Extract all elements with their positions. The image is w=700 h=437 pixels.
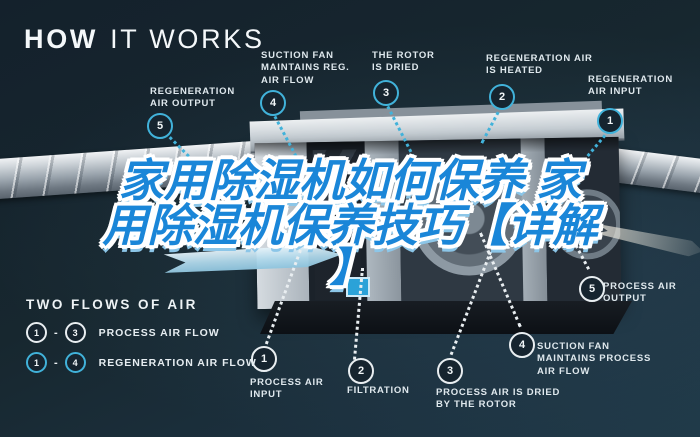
process-badge-2: 2 (348, 358, 374, 384)
regen-badge-5: 5 (147, 113, 173, 139)
regen-label-3: THE ROTOR IS DRIED (372, 50, 447, 75)
machine-base-plinth (260, 301, 632, 334)
legend-row-process: 1 - 3 PROCESS AIR FLOW (26, 322, 220, 343)
process-label-2: FILTRATION (347, 385, 427, 397)
overlay-line-1: 家用除湿机如何保养 家 (0, 158, 700, 203)
process-badge-3: 3 (437, 358, 463, 384)
process-label-3: PROCESS AIR IS DRIED BY THE ROTOR (436, 387, 561, 412)
page-title: HOWIT WORKS (24, 24, 265, 55)
regen-badge-2: 2 (489, 84, 515, 110)
legend-dash: - (54, 357, 58, 369)
legend-circle-to: 3 (65, 322, 86, 343)
process-badge-4: 4 (509, 332, 535, 358)
regen-badge-4: 4 (260, 90, 286, 116)
regen-label-1: REGENERATION AIR INPUT (588, 74, 678, 99)
legend-circle-from: 1 (26, 352, 47, 373)
legend-title: TWO FLOWS OF AIR (26, 297, 198, 312)
regen-label-5: REGENERATION AIR OUTPUT (150, 86, 245, 111)
title-strong: HOW (24, 24, 98, 54)
legend-circle-to: 4 (65, 352, 86, 373)
title-rest: IT WORKS (110, 24, 265, 54)
overlay-line-2: 用除湿机保养技巧【详解 (0, 203, 700, 248)
regen-label-2: REGENERATION AIR IS HEATED (486, 53, 601, 78)
process-label-4: SUCTION FAN MAINTAINS PROCESS AIR FLOW (537, 341, 657, 378)
legend-label-process: PROCESS AIR FLOW (99, 327, 220, 339)
legend-row-regeneration: 1 - 4 REGENERATION AIR FLOW (26, 352, 257, 373)
overlay-line-3: 】 (0, 248, 700, 288)
infographic-canvas: HOWIT WORKS REGENERATION AIR OUTPUT 5 SU… (0, 0, 700, 437)
regen-badge-1: 1 (597, 108, 623, 134)
legend-dash: - (54, 327, 58, 339)
regen-badge-3: 3 (373, 80, 399, 106)
legend-circle-from: 1 (26, 322, 47, 343)
legend-label-regeneration: REGENERATION AIR FLOW (99, 357, 257, 369)
regen-label-4: SUCTION FAN MAINTAINS REG. AIR FLOW (261, 50, 361, 87)
process-label-1: PROCESS AIR INPUT (250, 377, 335, 402)
